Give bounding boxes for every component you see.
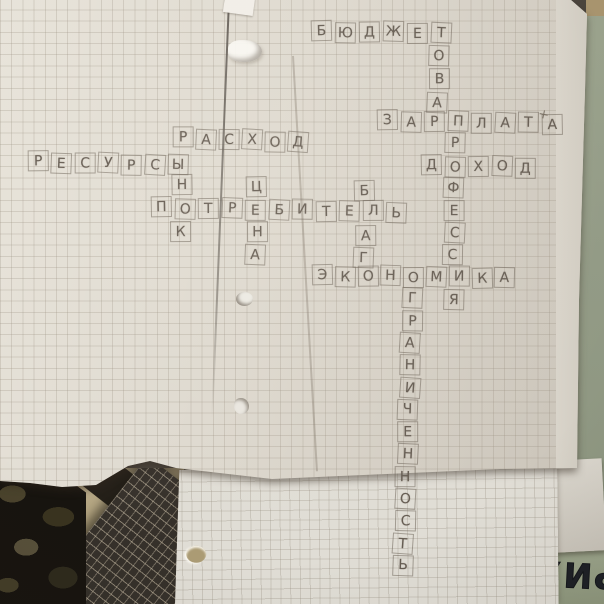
- crossword-cell: С: [442, 244, 463, 265]
- crossword-cell: Р: [402, 310, 423, 331]
- crossword-cell: Д: [287, 131, 309, 153]
- crossword-cell: О: [428, 45, 450, 67]
- crossword-cell: Т: [198, 198, 219, 219]
- crossword-cell: И: [399, 376, 421, 398]
- crossword-cell: О: [403, 267, 424, 288]
- crossword-cell: В: [429, 69, 450, 90]
- crossword-cell: Б: [311, 20, 333, 42]
- crossword-cell: О: [394, 488, 416, 510]
- crossword-cell: А: [426, 91, 448, 113]
- crossword-cell: А: [494, 267, 515, 288]
- crossword-cell: А: [195, 129, 217, 151]
- crossword-cell: Я: [443, 289, 465, 311]
- crossword-cell: Б: [268, 199, 290, 221]
- crossword-cell: Р: [424, 111, 445, 132]
- crossword-cell: Э: [312, 264, 334, 286]
- crossword-cell: Ь: [392, 555, 414, 577]
- crossword-cell: Б: [354, 180, 375, 201]
- crossword-cell: Ю: [335, 22, 356, 43]
- crossword-cell: Ф: [443, 177, 465, 199]
- crossword-cell: Е: [444, 200, 465, 221]
- crossword-cell: И: [292, 198, 313, 219]
- crossword-cell: А: [494, 112, 516, 134]
- crossword-cell: Х: [241, 128, 263, 150]
- crossword-cell: Ы: [167, 154, 189, 176]
- crossword-cell: А: [400, 111, 422, 133]
- crossword-cell: К: [170, 221, 191, 242]
- crossword-cell: О: [491, 155, 513, 177]
- crossword-cell: Ц: [246, 176, 267, 197]
- crossword-cell: К: [471, 268, 493, 290]
- crossword-cell: Л: [362, 200, 383, 221]
- crossword-cell: С: [218, 129, 239, 150]
- crossword-cell: Р: [28, 150, 49, 171]
- crossword-cell: Е: [407, 23, 428, 44]
- crossword-cell: Г: [401, 287, 423, 309]
- crossword-cell: Д: [421, 154, 442, 175]
- crossword-cell: З: [377, 109, 398, 130]
- crossword-cell: С: [74, 152, 95, 173]
- crossword-cell: П: [447, 110, 469, 132]
- crossword-cell: Е: [245, 200, 266, 221]
- crossword-cell: Е: [51, 152, 73, 174]
- crossword-cell: Е: [397, 421, 418, 442]
- crossword-cell: Т: [315, 201, 336, 222]
- crossword-cell: К: [334, 266, 355, 287]
- crossword-cell: Х: [468, 156, 489, 177]
- crossword-cell: А: [541, 114, 562, 135]
- crossword-cell: О: [174, 198, 196, 220]
- crossword-cell: Н: [380, 264, 402, 286]
- crossword-cell: Р: [121, 155, 142, 176]
- crossword-cell: А: [399, 332, 421, 354]
- crossword-cell: Н: [171, 174, 192, 195]
- crossword-cell: Ь: [385, 202, 407, 224]
- crossword-cell: Т: [430, 22, 452, 44]
- crossword-cell: П: [151, 196, 172, 217]
- crossword-cell: О: [264, 131, 285, 152]
- crossword-cell: Л: [471, 113, 492, 134]
- crossword-cell: А: [244, 243, 266, 265]
- crossword-cell: Н: [399, 354, 420, 375]
- crossword-cell: Т: [392, 532, 414, 554]
- crossword-cell: М: [425, 266, 447, 288]
- crossword-cell: Н: [247, 221, 268, 242]
- photo-scene: РИЯ + БЮДЖЕТОВАЗАРПЛАТАРФЕССЯДОХОДРАСХОД…: [0, 0, 604, 604]
- crossword-cell: Д: [359, 21, 380, 42]
- crossword-cell: С: [144, 154, 166, 176]
- crossword-cell: Н: [395, 466, 416, 487]
- crossword-cell: Н: [397, 443, 419, 465]
- crossword-cell: Р: [221, 197, 243, 219]
- crossword-cell: С: [395, 510, 416, 531]
- crossword-cell: Д: [515, 158, 536, 179]
- crossword-cell: А: [355, 225, 376, 246]
- crossword-cell: И: [449, 265, 470, 286]
- crossword-cell: Р: [444, 132, 466, 154]
- crossword-cell: С: [444, 222, 466, 244]
- crossword-cell: Ч: [397, 399, 419, 421]
- crossword-grid: БЮДЖЕТОВАЗАРПЛАТАРФЕССЯДОХОДРАСХОДРЕСУРС…: [0, 0, 604, 604]
- crossword-cell: О: [444, 156, 466, 178]
- crossword-cell: Е: [338, 200, 360, 222]
- crossword-cell: О: [357, 265, 378, 286]
- crossword-cell: Т: [518, 111, 539, 132]
- crossword-cell: У: [97, 152, 119, 174]
- crossword-cell: Р: [173, 126, 194, 147]
- crossword-cell: Ж: [383, 20, 405, 42]
